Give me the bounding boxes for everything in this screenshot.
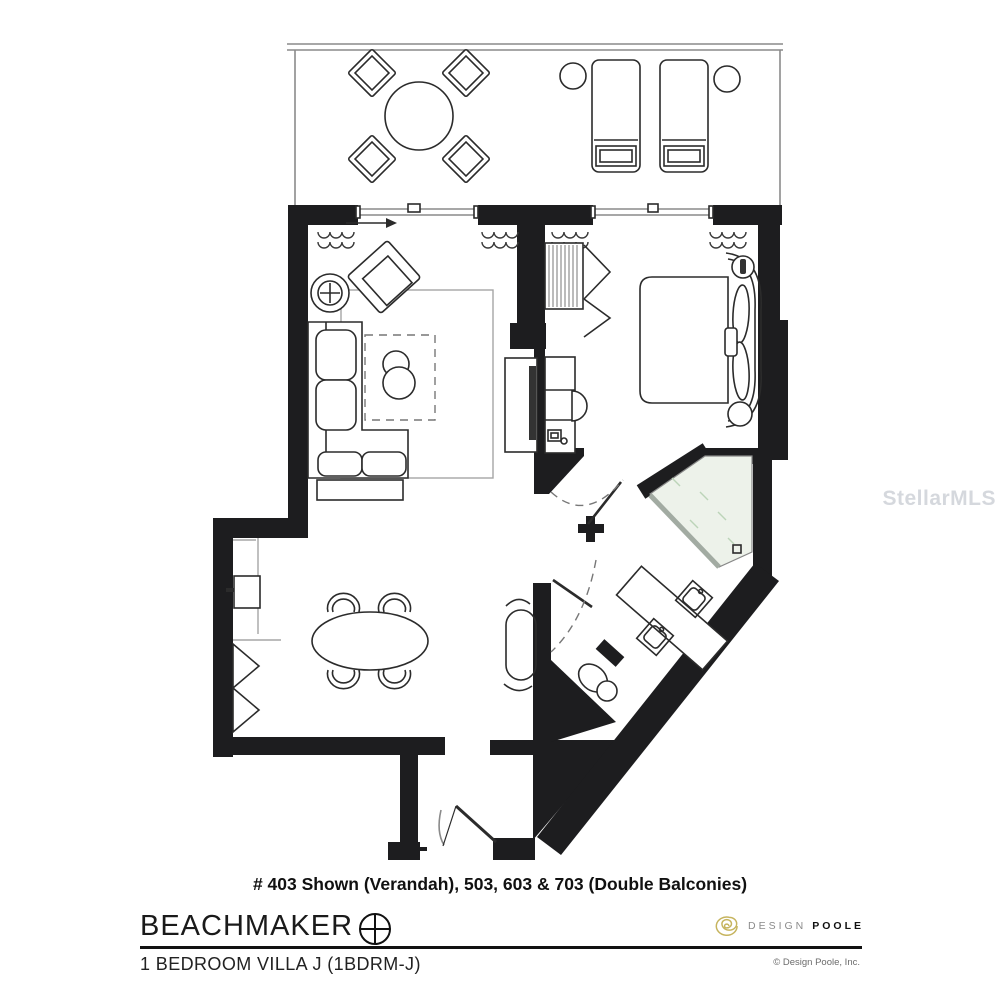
ottoman — [383, 351, 415, 399]
copyright-text: © Design Poole, Inc. — [773, 957, 860, 968]
bedside-lamp — [732, 256, 754, 278]
lounge-chair — [592, 60, 640, 172]
sliding-window — [356, 204, 478, 218]
curtain — [318, 232, 354, 248]
sliding-window — [591, 204, 713, 218]
floor-plan-drawing — [0, 0, 1000, 1000]
louver-door — [233, 644, 259, 688]
plan-subtitle: 1 BEDROOM VILLA J (1BDRM-J) — [140, 954, 421, 975]
entry-door-leaf — [443, 806, 456, 846]
side-table — [714, 66, 740, 92]
entry-door-leaf — [456, 806, 496, 842]
dining-table — [312, 612, 428, 670]
sink — [234, 576, 260, 608]
floorplan-page: StellarMLS # 403 Shown (Verandah), 503, … — [0, 0, 1000, 1000]
hallway — [504, 480, 623, 691]
bath-door-leaf — [553, 580, 592, 607]
brand-title: BEACHMAKER — [140, 910, 353, 943]
lounge-chair — [660, 60, 708, 172]
door-stop-mark — [419, 847, 427, 851]
unit-caption: # 403 Shown (Verandah), 503, 603 & 703 (… — [0, 874, 1000, 895]
bifold-door — [584, 299, 610, 337]
round-side-table — [311, 274, 349, 312]
verandah-chair — [442, 49, 490, 97]
vanity — [617, 566, 728, 669]
bed — [640, 253, 761, 427]
tv-console — [505, 358, 537, 452]
living-room — [308, 240, 537, 500]
console-table — [317, 480, 403, 500]
tv — [529, 366, 536, 440]
dining-chair — [328, 593, 360, 612]
kitchenette — [226, 538, 281, 732]
logo-word-poole: POOLE — [812, 920, 864, 932]
desk-chair — [572, 391, 587, 421]
dining-area — [226, 538, 428, 732]
sectional-sofa — [308, 322, 408, 478]
desk — [545, 357, 575, 453]
logo-word-design: DESIGN — [748, 920, 806, 932]
lounge-seat — [504, 599, 536, 690]
title-divider — [140, 946, 862, 949]
curtain — [482, 232, 518, 248]
verandah-chair — [348, 49, 396, 97]
cushion — [725, 328, 737, 356]
bedroom — [545, 243, 761, 453]
stellar-mls-watermark: StellarMLS — [882, 487, 996, 511]
designpoole-logo: DESIGNPOOLE — [714, 913, 864, 939]
armchair — [347, 240, 421, 313]
verandah-table — [385, 82, 453, 150]
verandah-chair — [442, 135, 490, 183]
bathroom — [573, 456, 752, 701]
bedside-lamp — [728, 402, 752, 426]
closet — [545, 243, 610, 337]
verandah — [287, 44, 783, 206]
compass-icon — [357, 911, 393, 947]
dining-chair — [379, 593, 411, 612]
designpoole-spiral-icon — [714, 913, 742, 939]
verandah-chair — [348, 135, 396, 183]
bifold-door — [584, 245, 610, 299]
curtain — [710, 232, 746, 248]
louver-door — [233, 688, 259, 732]
dining-chair — [328, 670, 360, 689]
dining-chair — [379, 670, 411, 689]
entry-door-swing — [439, 810, 444, 845]
entry — [439, 806, 496, 846]
side-table — [560, 63, 586, 89]
